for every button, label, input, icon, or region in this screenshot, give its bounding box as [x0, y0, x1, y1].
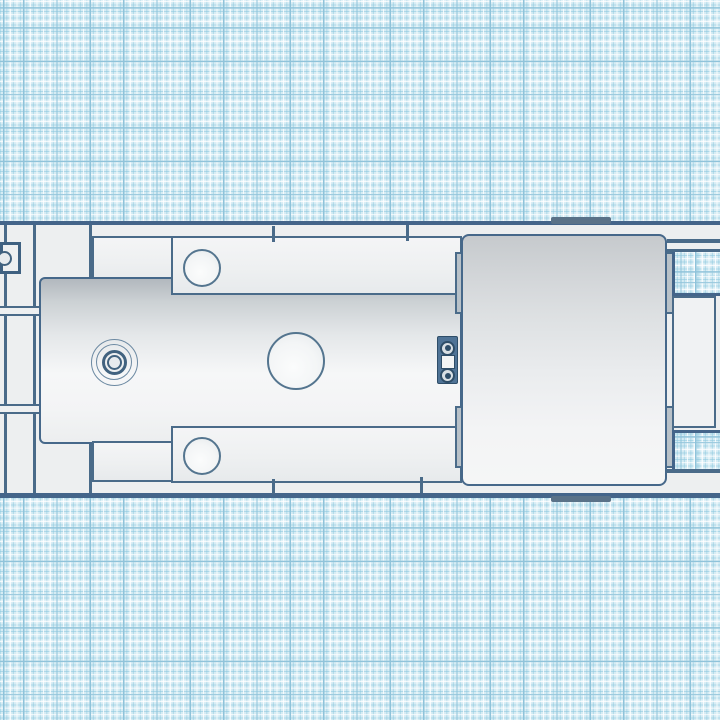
side-rail-top-hole[interactable]: [183, 249, 221, 287]
coupler-bolt-top-dot: [445, 345, 451, 351]
rear-rail-top-edge: [667, 249, 720, 252]
rear-grid-gap-upper: [672, 252, 720, 296]
rear-rail-bottom-edge: [666, 469, 720, 473]
deck-post-top-b: [406, 225, 409, 241]
dome-hub[interactable]: [107, 355, 122, 370]
left-column-line: [33, 225, 36, 493]
front-rail-bottom[interactable]: [92, 441, 174, 482]
rear-rail-inner-line: [667, 239, 720, 243]
deck-post-bottom-a: [272, 479, 275, 494]
rear-frame[interactable]: [672, 296, 716, 428]
rear-grid-gap-lower: [672, 430, 720, 469]
deck-bottom-edge: [0, 493, 720, 498]
left-crossbar-upper[interactable]: [0, 306, 41, 316]
hitch-ring[interactable]: [0, 251, 12, 266]
coupler-window[interactable]: [441, 355, 455, 369]
deck-post-top-a: [272, 226, 275, 242]
workplane-viewport[interactable]: [0, 0, 720, 720]
deck-top-edge: [0, 221, 720, 225]
deck-post-bottom-b: [420, 477, 423, 493]
cab-block[interactable]: [461, 234, 667, 486]
coupler-bolt-bottom-dot: [445, 373, 451, 379]
body-round-hole[interactable]: [267, 332, 325, 390]
side-rail-bottom-hole[interactable]: [183, 437, 221, 475]
handle-tab-bottom[interactable]: [551, 496, 611, 503]
left-crossbar-lower[interactable]: [0, 404, 41, 414]
handle-tab-top[interactable]: [551, 217, 611, 224]
